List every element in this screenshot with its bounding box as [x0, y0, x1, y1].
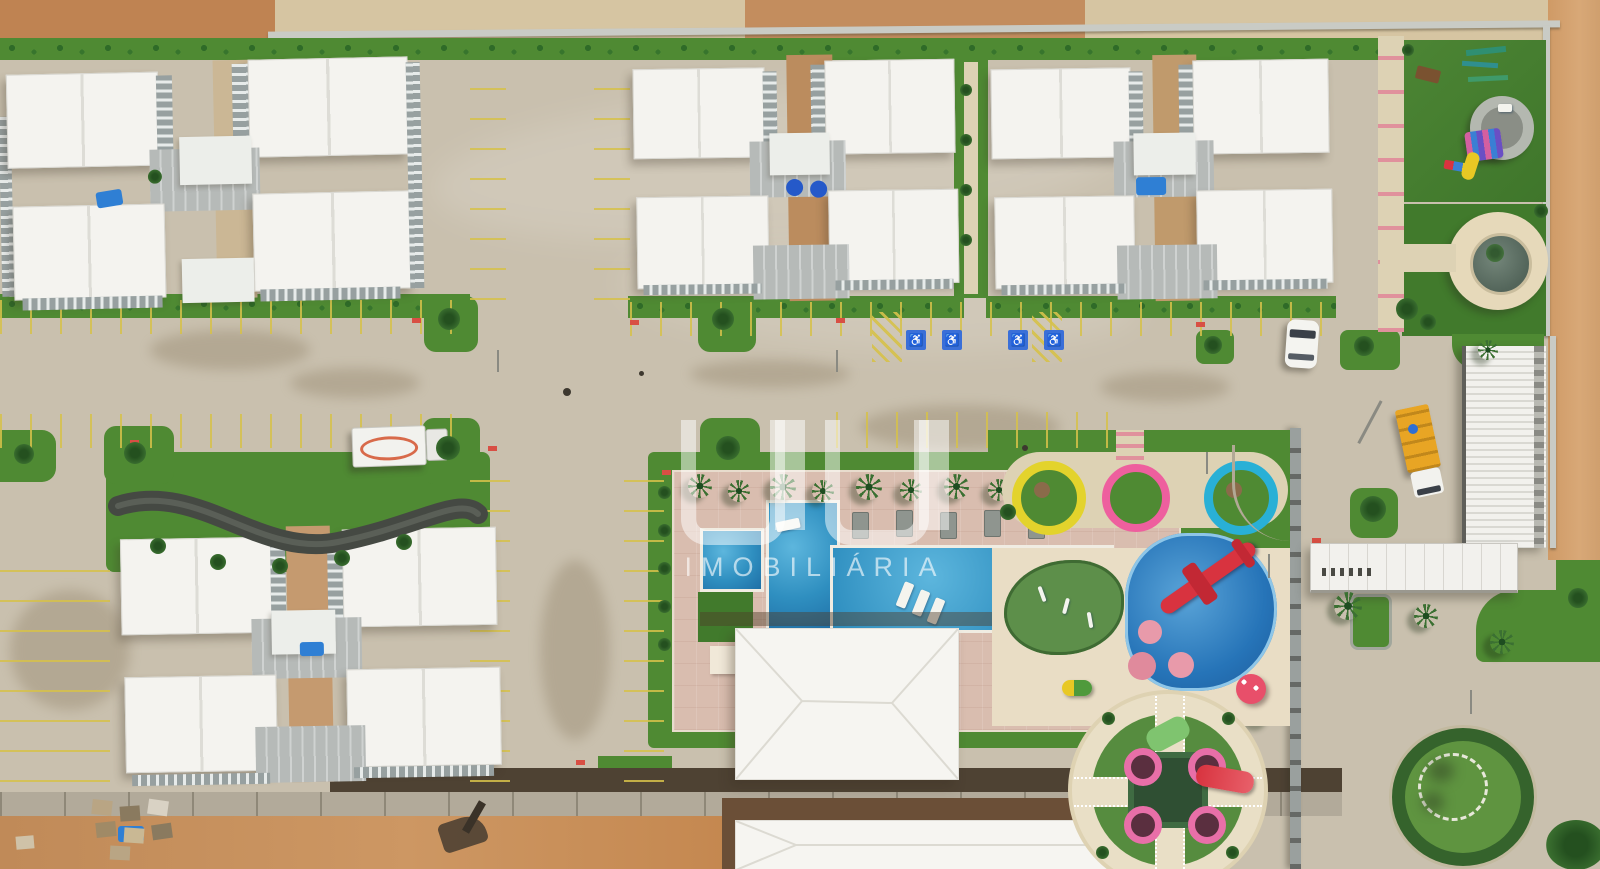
parking-row-north-east — [630, 302, 1336, 336]
castle-tower — [1124, 748, 1162, 786]
palm-tree — [1414, 604, 1438, 628]
roof-ridge-lines — [736, 629, 958, 779]
shrub — [150, 538, 166, 554]
apartment-block — [252, 190, 414, 291]
watermark-logo-glyph — [681, 420, 785, 545]
watermark: IMOBILIÁRIA — [600, 420, 1030, 610]
crane-truck — [1393, 403, 1452, 503]
apartment-block — [13, 203, 167, 300]
rings-path-stub — [1116, 430, 1144, 460]
accessible-parking-icon: ♿ — [1044, 330, 1064, 350]
road-stain — [290, 368, 420, 398]
material-pallet — [91, 799, 112, 816]
perimeter-wall-right-lower — [1550, 336, 1556, 548]
stair-core — [179, 136, 252, 185]
stair-core — [182, 258, 255, 303]
road-stain — [690, 360, 850, 388]
shrub — [1420, 314, 1436, 330]
palm-tree — [1478, 340, 1498, 360]
connector-wing — [1117, 244, 1218, 299]
ring-center-sand — [1034, 482, 1050, 498]
castle-tower — [1188, 806, 1226, 844]
wave-shade-structure — [108, 466, 488, 576]
clubhouse-roof — [735, 628, 959, 780]
building-facade — [260, 287, 400, 302]
parking-column-upper-east — [594, 62, 630, 300]
roundabout-shadow — [1428, 760, 1454, 782]
accessible-hatch-zone — [872, 312, 902, 362]
water-tank — [786, 179, 803, 196]
apartment-block — [636, 195, 769, 289]
material-pallet — [120, 805, 141, 821]
palm-tree — [1490, 630, 1514, 654]
manhole — [563, 388, 571, 396]
curb-marker — [412, 318, 421, 323]
shrub — [210, 554, 226, 570]
parking-column-upper-west — [470, 62, 506, 300]
water-tank-cover — [300, 642, 324, 656]
stair-core — [769, 133, 830, 176]
building-facade — [132, 773, 270, 786]
apartment-block — [990, 67, 1131, 159]
shrub — [334, 550, 350, 566]
shrub — [658, 638, 671, 651]
mushroom-seat — [1236, 674, 1266, 704]
parking-stain — [150, 330, 310, 370]
material-pallet — [95, 821, 116, 838]
shrub — [1226, 846, 1239, 859]
accessible-parking-icon: ♿ — [942, 330, 962, 350]
watermark-logo-glyph — [775, 420, 805, 530]
palm-tree — [1334, 592, 1362, 620]
apartment-cluster-northeast — [984, 53, 1337, 308]
apartment-cluster-northwest — [0, 47, 473, 310]
apartment-block — [994, 195, 1135, 289]
white-suv — [1284, 319, 1319, 369]
tree-canopy — [1360, 496, 1386, 522]
building-facade — [835, 279, 953, 291]
spring-toy — [1062, 680, 1092, 696]
rec-area-walk — [1378, 36, 1404, 332]
curb-marker — [836, 318, 845, 323]
island-shrub — [14, 444, 34, 464]
ground-dot-pink — [1138, 620, 1162, 644]
building-facade — [1001, 284, 1125, 296]
play-panel — [1498, 104, 1512, 112]
curb-marker — [630, 320, 639, 325]
aerial-photo: ♿ ♿ ♿ ♿ — [0, 0, 1600, 869]
water-tank-cover — [1136, 177, 1166, 195]
gatehouse-sign-row — [1322, 568, 1376, 576]
service-building-edge — [1534, 346, 1544, 548]
apartment-block — [6, 72, 160, 169]
ground-dot-pink — [1168, 652, 1194, 678]
shrub — [960, 134, 972, 146]
suv-rear-window — [1288, 353, 1314, 361]
light-pole — [836, 350, 838, 372]
crane-boom — [1357, 400, 1382, 444]
shrub — [1402, 44, 1414, 56]
apartment-block — [248, 56, 410, 157]
shrub — [960, 234, 972, 246]
right-edge-lawn — [1556, 560, 1600, 660]
material-pallet — [110, 845, 131, 860]
crane-truck-bed — [1395, 404, 1442, 474]
shrub — [1222, 712, 1235, 725]
curb-marker — [576, 760, 585, 765]
shrub — [960, 84, 972, 96]
suv-windshield — [1289, 329, 1315, 339]
stair-core — [1133, 133, 1196, 176]
watermark-logo-glyph — [919, 420, 949, 530]
shrub — [1096, 846, 1109, 859]
roundabout-shadow — [1422, 792, 1444, 812]
parking-column-far-west — [0, 556, 110, 782]
connector-wing — [255, 725, 366, 783]
material-pallet — [15, 835, 34, 850]
island-shrub — [438, 308, 460, 330]
apartment-cluster-north-middle — [628, 53, 961, 308]
play-ring-pink — [1102, 464, 1170, 532]
accessible-parking-icon: ♿ — [1008, 330, 1028, 350]
curb-marker — [1196, 322, 1205, 327]
shrub — [1534, 204, 1548, 218]
building-facade — [643, 283, 761, 295]
shrub — [272, 558, 288, 574]
island-shrub — [436, 436, 460, 460]
manhole — [639, 371, 644, 376]
light-pole — [1470, 690, 1472, 714]
building-facade — [1203, 279, 1327, 291]
curb-marker — [488, 446, 497, 451]
island-shrub — [1204, 336, 1222, 354]
watermark-logo-glyph — [825, 420, 929, 545]
shrub — [1102, 712, 1115, 725]
shrub — [396, 534, 412, 550]
material-pallet — [147, 799, 169, 817]
material-pallet — [151, 823, 173, 841]
shrub — [1568, 588, 1588, 608]
watermark-brand-text: IMOBILIÁRIA — [600, 552, 1030, 583]
shrub — [1396, 298, 1418, 320]
box-truck — [351, 422, 448, 467]
apartment-block — [632, 67, 765, 159]
castle-tower — [1124, 806, 1162, 844]
light-pole — [497, 350, 499, 372]
island-shrub — [712, 308, 734, 330]
pond-plant — [1486, 244, 1504, 262]
accessible-parking-icon: ♿ — [906, 330, 926, 350]
fountain-plaza-stub — [1380, 244, 1456, 272]
building-facade — [354, 765, 494, 778]
light-pole — [1206, 452, 1208, 474]
ground-dot-pink — [1128, 652, 1156, 680]
island-shrub — [124, 442, 146, 464]
work-equipment — [1408, 424, 1418, 434]
island-shrub — [1354, 336, 1374, 356]
light-pole — [1268, 554, 1270, 578]
cluster-walkway-path — [964, 62, 978, 294]
connector-wing — [753, 244, 850, 299]
apartment-block — [346, 667, 502, 768]
corner-vegetation — [1546, 820, 1600, 869]
shrub — [960, 184, 972, 196]
road-stain — [1100, 372, 1230, 402]
fountain-pond — [1470, 233, 1532, 295]
material-pallet — [124, 827, 145, 843]
